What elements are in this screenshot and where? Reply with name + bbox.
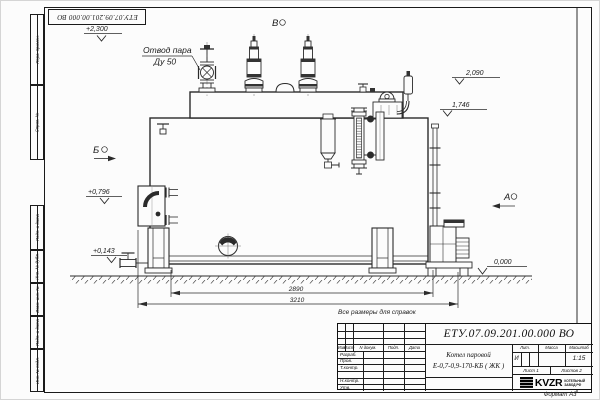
- doc-number: ЕТУ.07.09.201.00.000 ВО: [425, 324, 593, 344]
- product-name: Котел паровой Е-0,7-0,9-170-КБ ( ЖК ): [425, 344, 512, 377]
- side-column-inv-dubl: Инв. № дубл.: [30, 250, 44, 283]
- side-column-podp-data-1: Подп. и дата: [30, 205, 44, 250]
- kvzr-logo-icon: [520, 377, 533, 388]
- side-label: Инв. № дубл.: [35, 253, 40, 279]
- side-column-perv-primen: Перв. примен.: [30, 14, 44, 85]
- col-header-data: Дата: [404, 344, 425, 351]
- side-column-vzam-inv: Взам. инв. №: [30, 283, 44, 316]
- prop-header-scale: Масштаб: [565, 344, 593, 352]
- side-label: Подп. и дата: [35, 319, 40, 346]
- side-label: Взам. инв. №: [35, 286, 40, 313]
- company-logo: KVZR КОТЕЛЬНЫЙ ЗАВОД РФ: [512, 374, 593, 391]
- lit-value: И: [512, 352, 521, 367]
- sheet-number: Лист 1: [512, 366, 550, 374]
- row-prov: Пров.: [338, 358, 365, 365]
- drawing-sheet: Перв. примен. Справ. № Подп. и дата Инв.…: [0, 0, 600, 400]
- top-stamp-doc-number: ЕТУ.07.09.201.00.000 ВО: [57, 13, 138, 21]
- scale-value: 1:15: [565, 352, 593, 367]
- logo-subtext-2: ЗАВОД РФ: [564, 383, 585, 387]
- logo-text: KVZR: [535, 377, 562, 389]
- row-utv: Утв.: [338, 384, 365, 391]
- side-label: Подп. и дата: [35, 214, 40, 241]
- side-label: Справ. №: [35, 113, 40, 133]
- side-label: Инв. № подл.: [35, 357, 40, 384]
- row-nkontr: Н.контр.: [338, 378, 365, 385]
- product-name-line2: Е-0,7-0,9-170-КБ ( ЖК ): [433, 362, 504, 370]
- prop-header-mass: Масса: [538, 344, 565, 352]
- product-name-line1: Котел паровой: [446, 351, 491, 359]
- col-header-podp: Подп.: [383, 344, 404, 351]
- side-column-sprav-n: Справ. №: [30, 85, 44, 160]
- row-razrab: Разраб.: [338, 351, 365, 358]
- side-label: Перв. примен.: [35, 35, 40, 64]
- side-column-inv-podl: Инв. № подл.: [30, 349, 44, 392]
- side-column-podp-data-2: Подп. и дата: [30, 316, 44, 349]
- reference-note: Все размеры для справок: [338, 309, 416, 316]
- prop-header-lit: Лит.: [512, 344, 538, 352]
- top-inverted-stamp: ЕТУ.07.09.201.00.000 ВО: [48, 9, 146, 25]
- title-block: Изм Лист N докум. Подп. Дата Разраб. Про…: [337, 323, 592, 390]
- sheets-total: Листов 2: [550, 366, 593, 374]
- row-tkontr: Т.контр.: [338, 364, 365, 371]
- format-label: Формат А3: [530, 392, 590, 398]
